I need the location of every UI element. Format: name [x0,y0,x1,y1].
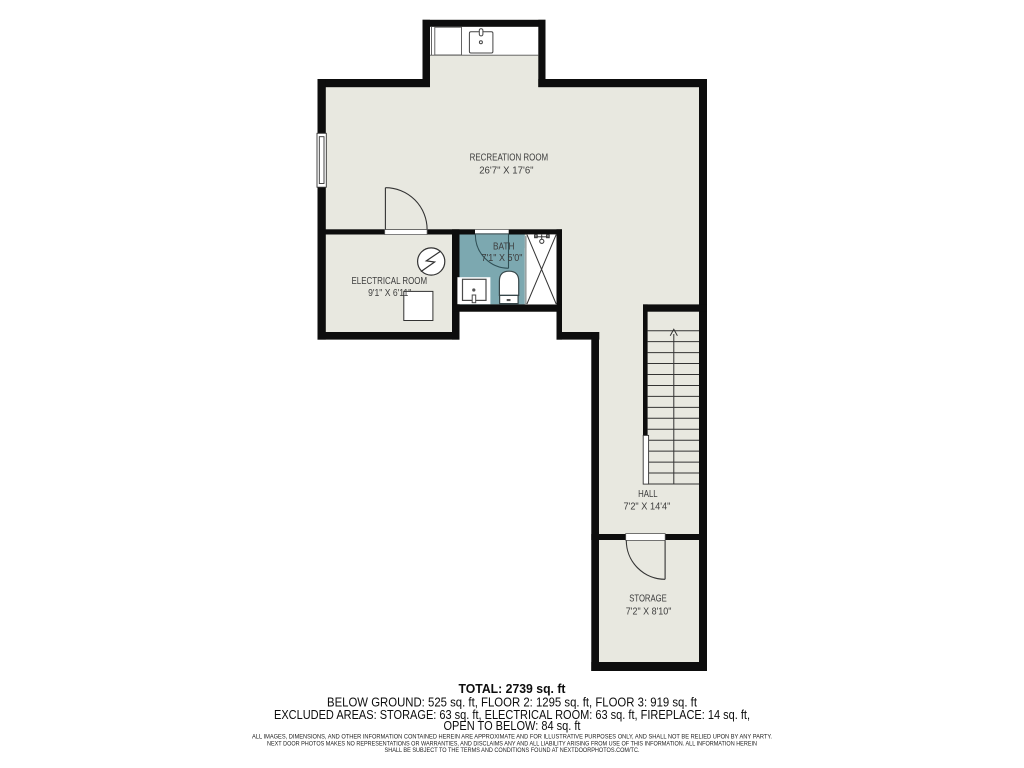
svg-text:HALL: HALL [638,489,658,500]
svg-text:OPEN TO BELOW: 84 sq. ft: OPEN TO BELOW: 84 sq. ft [444,719,581,733]
svg-text:ELECTRICAL ROOM: ELECTRICAL ROOM [352,276,428,287]
svg-text:TOTAL: 2739 sq. ft: TOTAL: 2739 sq. ft [459,682,567,696]
svg-text:BELOW GROUND: 525 sq. ft, FLOO: BELOW GROUND: 525 sq. ft, FLOOR 2: 1295 … [327,695,697,709]
svg-text:7'1" X 5'0": 7'1" X 5'0" [482,253,523,264]
svg-text:STORAGE: STORAGE [629,593,667,604]
svg-text:SHALL BE SUBJECT TO THE TERMS: SHALL BE SUBJECT TO THE TERMS AND CONDIT… [385,747,640,754]
svg-text:7'2" X 8'10": 7'2" X 8'10" [626,606,672,617]
svg-text:9'1" X 6'11": 9'1" X 6'11" [368,288,412,299]
svg-text:RECREATION ROOM: RECREATION ROOM [470,153,549,164]
svg-text:BATH: BATH [493,242,515,253]
svg-text:26'7" X 17'6": 26'7" X 17'6" [479,166,534,177]
svg-text:7'2" X 14'4": 7'2" X 14'4" [623,501,670,512]
